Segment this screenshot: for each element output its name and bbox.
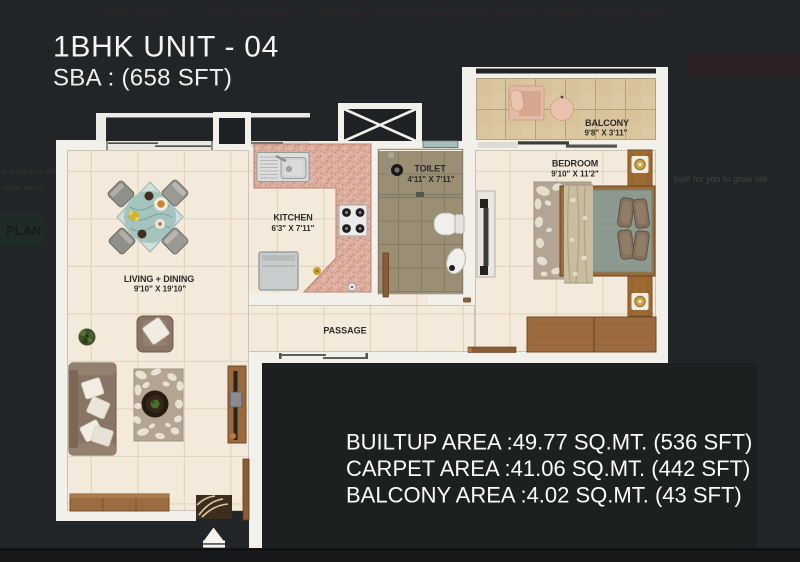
svg-text:TOILET: TOILET bbox=[414, 164, 446, 174]
svg-text:mpus archit: mpus archit bbox=[2, 183, 44, 192]
svg-text:9'10" X 19'10": 9'10" X 19'10" bbox=[134, 285, 187, 294]
svg-text:1BHK UNIT - 04: 1BHK UNIT - 04 bbox=[53, 31, 279, 64]
svg-text:4'11" X 7'11": 4'11" X 7'11" bbox=[408, 175, 455, 184]
svg-text:9'8" X 3'11": 9'8" X 3'11" bbox=[585, 129, 628, 138]
svg-text:PASSAGE: PASSAGE bbox=[323, 326, 366, 336]
svg-text:BUILTUP AREA :49.77 SQ.MT. (53: BUILTUP AREA :49.77 SQ.MT. (536 SFT) bbox=[346, 430, 752, 455]
svg-text:n a campus wh: n a campus wh bbox=[2, 167, 56, 176]
svg-text:GALLERY +: GALLERY + bbox=[612, 9, 675, 20]
svg-text:UNIT PLANS: UNIT PLANS bbox=[103, 9, 172, 20]
svg-text:SBA : (658 SFT): SBA : (658 SFT) bbox=[53, 65, 232, 92]
svg-text:LIVING + DINING: LIVING + DINING bbox=[124, 274, 194, 284]
svg-text:THE RESIDENCES +: THE RESIDENCES + bbox=[432, 9, 544, 20]
svg-text:6'3" X 7'11": 6'3" X 7'11" bbox=[272, 224, 315, 233]
svg-text:AMENITIES: AMENITIES bbox=[548, 9, 611, 20]
svg-text:MASTER PLANNING: MASTER PLANNING bbox=[322, 9, 433, 20]
svg-text:9'10" X 11'2": 9'10" X 11'2" bbox=[551, 170, 599, 179]
svg-text:built for you to grow old: built for you to grow old bbox=[674, 174, 767, 184]
svg-text:BALCONY: BALCONY bbox=[585, 118, 629, 128]
svg-text:CARPET AREA :41.06 SQ.MT. (442: CARPET AREA :41.06 SQ.MT. (442 SFT) bbox=[346, 456, 750, 481]
svg-text:BALCONY AREA :4.02 SQ.MT. (43: BALCONY AREA :4.02 SQ.MT. (43 SFT) bbox=[346, 483, 742, 508]
svg-text:KITCHEN: KITCHEN bbox=[273, 213, 312, 223]
svg-text:THE LOCATION +: THE LOCATION + bbox=[208, 9, 304, 20]
svg-text:BEDROOM: BEDROOM bbox=[552, 159, 598, 169]
svg-text:PLAN: PLAN bbox=[6, 223, 41, 238]
